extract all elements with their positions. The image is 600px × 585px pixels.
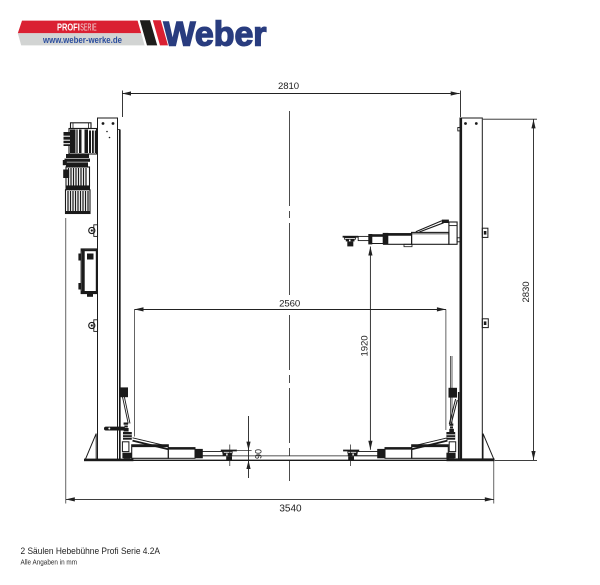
svg-text:Weber: Weber [164, 15, 267, 53]
svg-text:Alle Angaben in mm: Alle Angaben in mm [21, 560, 78, 567]
svg-text:www.weber-werke.de: www.weber-werke.de [42, 35, 122, 45]
svg-text:3540: 3540 [279, 504, 302, 515]
svg-text:1920: 1920 [360, 336, 371, 357]
svg-text:SERIE: SERIE [80, 23, 96, 34]
svg-text:2810: 2810 [278, 81, 299, 92]
svg-text:2830: 2830 [521, 282, 532, 303]
svg-text:2 Säulen Hebebühne Profi Serie: 2 Säulen Hebebühne Profi Serie 4.2A [21, 545, 161, 556]
svg-text:PROFI: PROFI [57, 23, 80, 34]
svg-text:2560: 2560 [279, 299, 300, 310]
svg-text:90: 90 [254, 449, 264, 459]
